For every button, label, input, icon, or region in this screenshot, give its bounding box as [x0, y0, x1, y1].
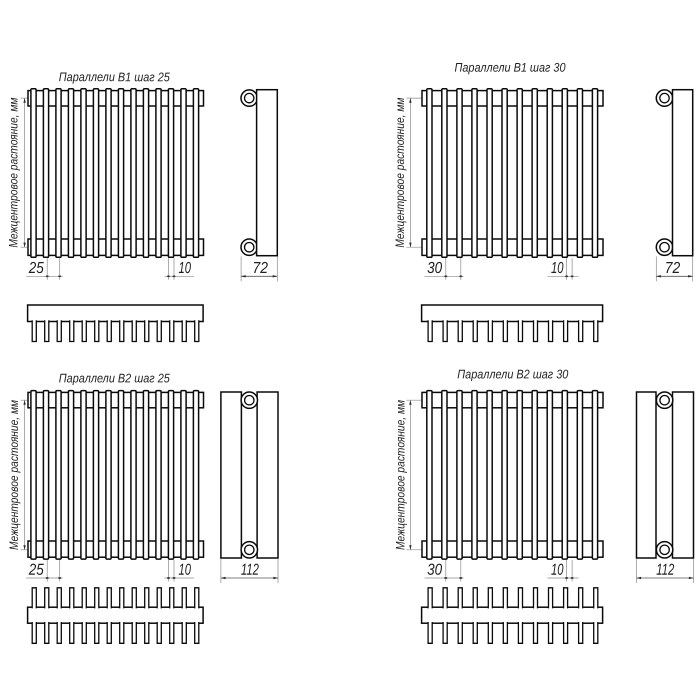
svg-text:72: 72 [665, 260, 681, 277]
svg-text:10: 10 [179, 562, 192, 579]
svg-text:Параллели В1 шаг 30: Параллели В1 шаг 30 [454, 61, 565, 75]
svg-text:72: 72 [253, 260, 269, 277]
svg-text:30: 30 [427, 562, 442, 579]
svg-text:112: 112 [656, 562, 674, 579]
svg-text:Параллели В2 шаг 30: Параллели В2 шаг 30 [457, 367, 568, 381]
svg-text:25: 25 [28, 562, 44, 579]
svg-text:10: 10 [551, 562, 564, 579]
svg-text:Межцентровое растояние, мм: Межцентровое растояние, мм [7, 97, 21, 248]
svg-text:10: 10 [179, 260, 192, 277]
svg-text:25: 25 [28, 260, 44, 277]
svg-text:Параллели В2 шаг 25: Параллели В2 шаг 25 [59, 371, 170, 385]
svg-text:Параллели В1 шаг 25: Параллели В1 шаг 25 [59, 70, 170, 84]
svg-text:Межцентровое растояние, мм: Межцентровое растояние, мм [393, 399, 407, 550]
svg-text:112: 112 [241, 562, 259, 579]
svg-text:Межцентровое растояние, мм: Межцентровое растояние, мм [7, 399, 21, 550]
svg-text:30: 30 [427, 260, 442, 277]
svg-text:Межцентровое растояние, мм: Межцентровое растояние, мм [393, 97, 407, 248]
svg-text:10: 10 [551, 260, 564, 277]
